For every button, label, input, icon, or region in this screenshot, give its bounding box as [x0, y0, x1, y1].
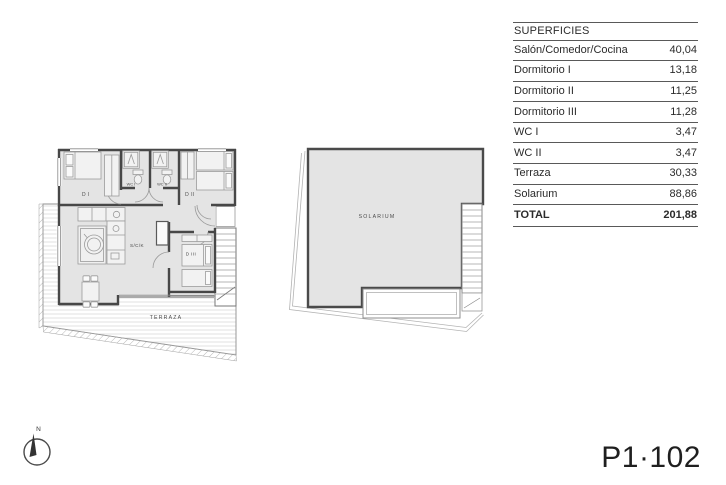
table-title: SUPERFICIES [514, 26, 590, 37]
total-value: 201,88 [663, 210, 697, 221]
kitchen-counter [78, 208, 125, 222]
lower-terrace-outline [363, 289, 460, 318]
table-row: WC II 3,47 [513, 143, 698, 164]
row-value: 11,28 [670, 107, 697, 118]
north-arrow-icon [30, 434, 37, 458]
row-label: Solarium [514, 189, 557, 200]
compass-circle [24, 439, 50, 465]
bed-single [197, 152, 234, 171]
table-row: WC I 3,47 [513, 123, 698, 144]
table-row: Solarium 88,86 [513, 185, 698, 206]
planter [216, 207, 235, 227]
table-row: Dormitorio III 11,28 [513, 102, 698, 123]
bed-single [197, 172, 234, 191]
table-row: Dormitorio I 13,18 [513, 61, 698, 82]
total-label: TOTAL [514, 210, 550, 221]
unit-code: P1·102 [601, 441, 701, 475]
row-label: WC I [514, 127, 538, 138]
row-label: Dormitorio I [514, 65, 571, 76]
room-label-sck: S/C/K [130, 243, 145, 248]
room-label-wc1: WC I [127, 182, 136, 187]
staircase [462, 204, 482, 311]
superficies-table: SUPERFICIES Salón/Comedor/Cocina 40,04 D… [513, 22, 698, 227]
bed-single [182, 270, 212, 287]
solarium-plan: SOLARIUM [290, 149, 484, 332]
north-compass: N [24, 426, 50, 465]
row-label: Terraza [514, 168, 551, 179]
room-label-solarium: SOLARIUM [359, 214, 396, 220]
table-row: Terraza 30,33 [513, 164, 698, 185]
room-label-d3: D III [186, 252, 196, 257]
row-value: 3,47 [676, 127, 697, 138]
apartment-plan: D I WC I WC II D II S/C/K D III TERRAZA [39, 148, 237, 361]
row-value: 40,04 [669, 45, 697, 56]
wardrobe [181, 152, 194, 179]
row-label: WC II [514, 148, 542, 159]
table-header-row: SUPERFICIES [513, 23, 698, 41]
row-value: 11,25 [670, 86, 697, 97]
table-row: Salón/Comedor/Cocina 40,04 [513, 41, 698, 62]
row-label: Dormitorio III [514, 107, 577, 118]
wardrobe [105, 155, 120, 196]
room-label-d2: D II [185, 192, 195, 198]
kitchen-units [107, 221, 125, 264]
room-label-d1: D I [82, 192, 90, 198]
row-value: 30,33 [669, 168, 697, 179]
row-value: 13,18 [669, 65, 697, 76]
compass-north-label: N [36, 426, 41, 433]
table-row: Dormitorio II 11,25 [513, 82, 698, 103]
row-label: Dormitorio II [514, 86, 574, 97]
shower [123, 151, 140, 169]
row-value: 3,47 [676, 148, 697, 159]
bed-double [64, 152, 101, 179]
row-label: Salón/Comedor/Cocina [514, 45, 628, 56]
solarium-floor [308, 149, 483, 307]
shower [152, 151, 169, 169]
staircase [215, 228, 236, 306]
room-label-wc2: WC II [157, 182, 167, 187]
table-total-row: TOTAL 201,88 [513, 205, 698, 227]
row-value: 88,86 [669, 189, 697, 200]
plan-sheet: D I WC I WC II D II S/C/K D III TERRAZA [0, 0, 726, 485]
room-label-terraza: TERRAZA [150, 315, 183, 321]
shelf [182, 235, 212, 242]
hall-closet [157, 222, 169, 246]
